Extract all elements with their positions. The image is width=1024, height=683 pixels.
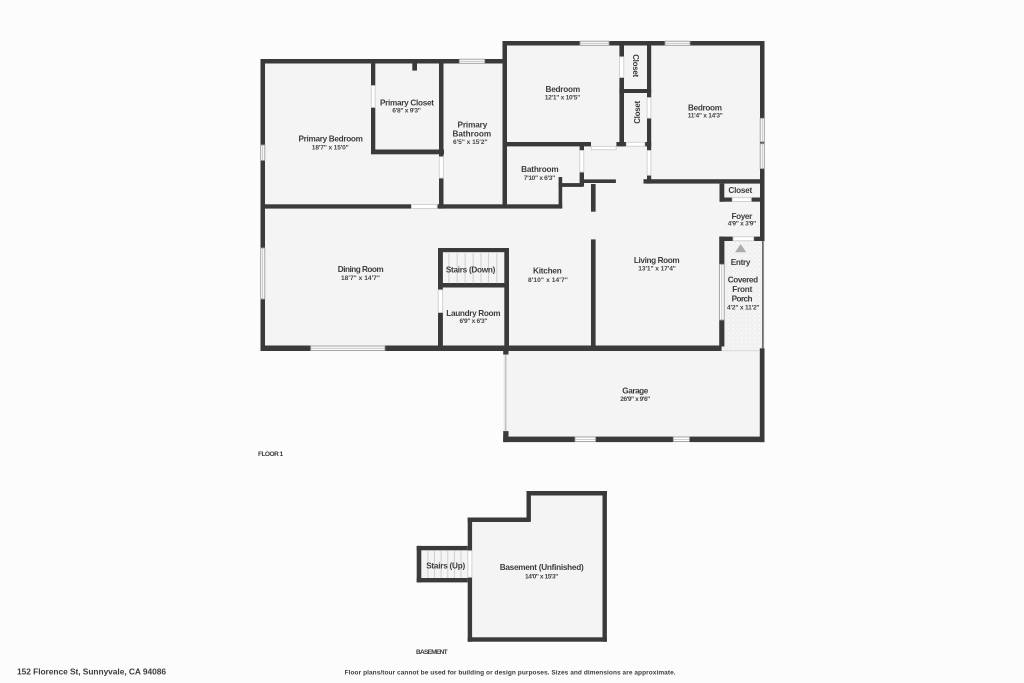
svg-text:Bathroom: Bathroom (521, 165, 559, 174)
svg-text:152 Florence St, Sunnyvale, CA: 152 Florence St, Sunnyvale, CA 94086 (17, 666, 166, 676)
svg-text:Dining Room: Dining Room (338, 265, 384, 274)
svg-text:Primary: Primary (458, 120, 488, 129)
svg-text:4'2" x 11'2": 4'2" x 11'2" (727, 304, 760, 311)
svg-text:Basement (Unfinished): Basement (Unfinished) (500, 563, 584, 572)
svg-text:Covered: Covered (728, 275, 758, 284)
svg-text:26'9" x 9'6": 26'9" x 9'6" (620, 396, 650, 403)
svg-text:Bedroom: Bedroom (688, 103, 722, 112)
svg-text:Bathroom: Bathroom (452, 130, 491, 139)
svg-text:11'4" x 14'3": 11'4" x 14'3" (688, 113, 723, 120)
svg-text:18'7" x 15'0": 18'7" x 15'0" (312, 144, 349, 151)
svg-text:18'7" x 14'7": 18'7" x 14'7" (341, 275, 380, 282)
svg-text:7'10" x 6'3": 7'10" x 6'3" (524, 175, 556, 182)
svg-text:Laundry Room: Laundry Room (446, 309, 500, 318)
svg-text:Kitchen: Kitchen (533, 266, 562, 275)
svg-text:Primary Closet: Primary Closet (380, 99, 434, 108)
svg-text:6'8" x 9'3": 6'8" x 9'3" (392, 108, 421, 115)
svg-text:4'9" x 3'9": 4'9" x 3'9" (728, 221, 757, 228)
svg-text:14'0" x 15'3": 14'0" x 15'3" (525, 574, 558, 581)
svg-text:Closet: Closet (728, 186, 752, 195)
svg-text:Stairs (Up): Stairs (Up) (426, 561, 465, 570)
svg-text:Garage: Garage (622, 386, 648, 395)
svg-text:Stairs (Down): Stairs (Down) (446, 266, 496, 275)
svg-text:6'5" x 15'2": 6'5" x 15'2" (453, 139, 488, 146)
svg-text:Bedroom: Bedroom (546, 85, 581, 94)
svg-text:FLOOR 1: FLOOR 1 (258, 451, 284, 458)
svg-text:Floor plans/tour cannot be use: Floor plans/tour cannot be used for buil… (345, 669, 676, 676)
svg-text:Primary Bedroom: Primary Bedroom (299, 135, 363, 144)
svg-text:Front: Front (732, 285, 752, 294)
svg-text:Entry: Entry (731, 258, 751, 267)
svg-text:12'1" x 10'5": 12'1" x 10'5" (545, 94, 581, 101)
svg-text:Closet: Closet (633, 100, 642, 123)
svg-text:Porch: Porch (732, 294, 753, 303)
svg-text:Living Room: Living Room (634, 256, 680, 265)
svg-text:Foyer: Foyer (732, 212, 754, 221)
svg-text:13'1" x 17'4": 13'1" x 17'4" (638, 266, 676, 273)
svg-text:6'9" x 6'3": 6'9" x 6'3" (460, 318, 488, 325)
svg-text:BASEMENT: BASEMENT (416, 649, 448, 656)
svg-text:Closet: Closet (631, 54, 640, 77)
svg-text:8'10" x 14'7": 8'10" x 14'7" (528, 277, 568, 284)
